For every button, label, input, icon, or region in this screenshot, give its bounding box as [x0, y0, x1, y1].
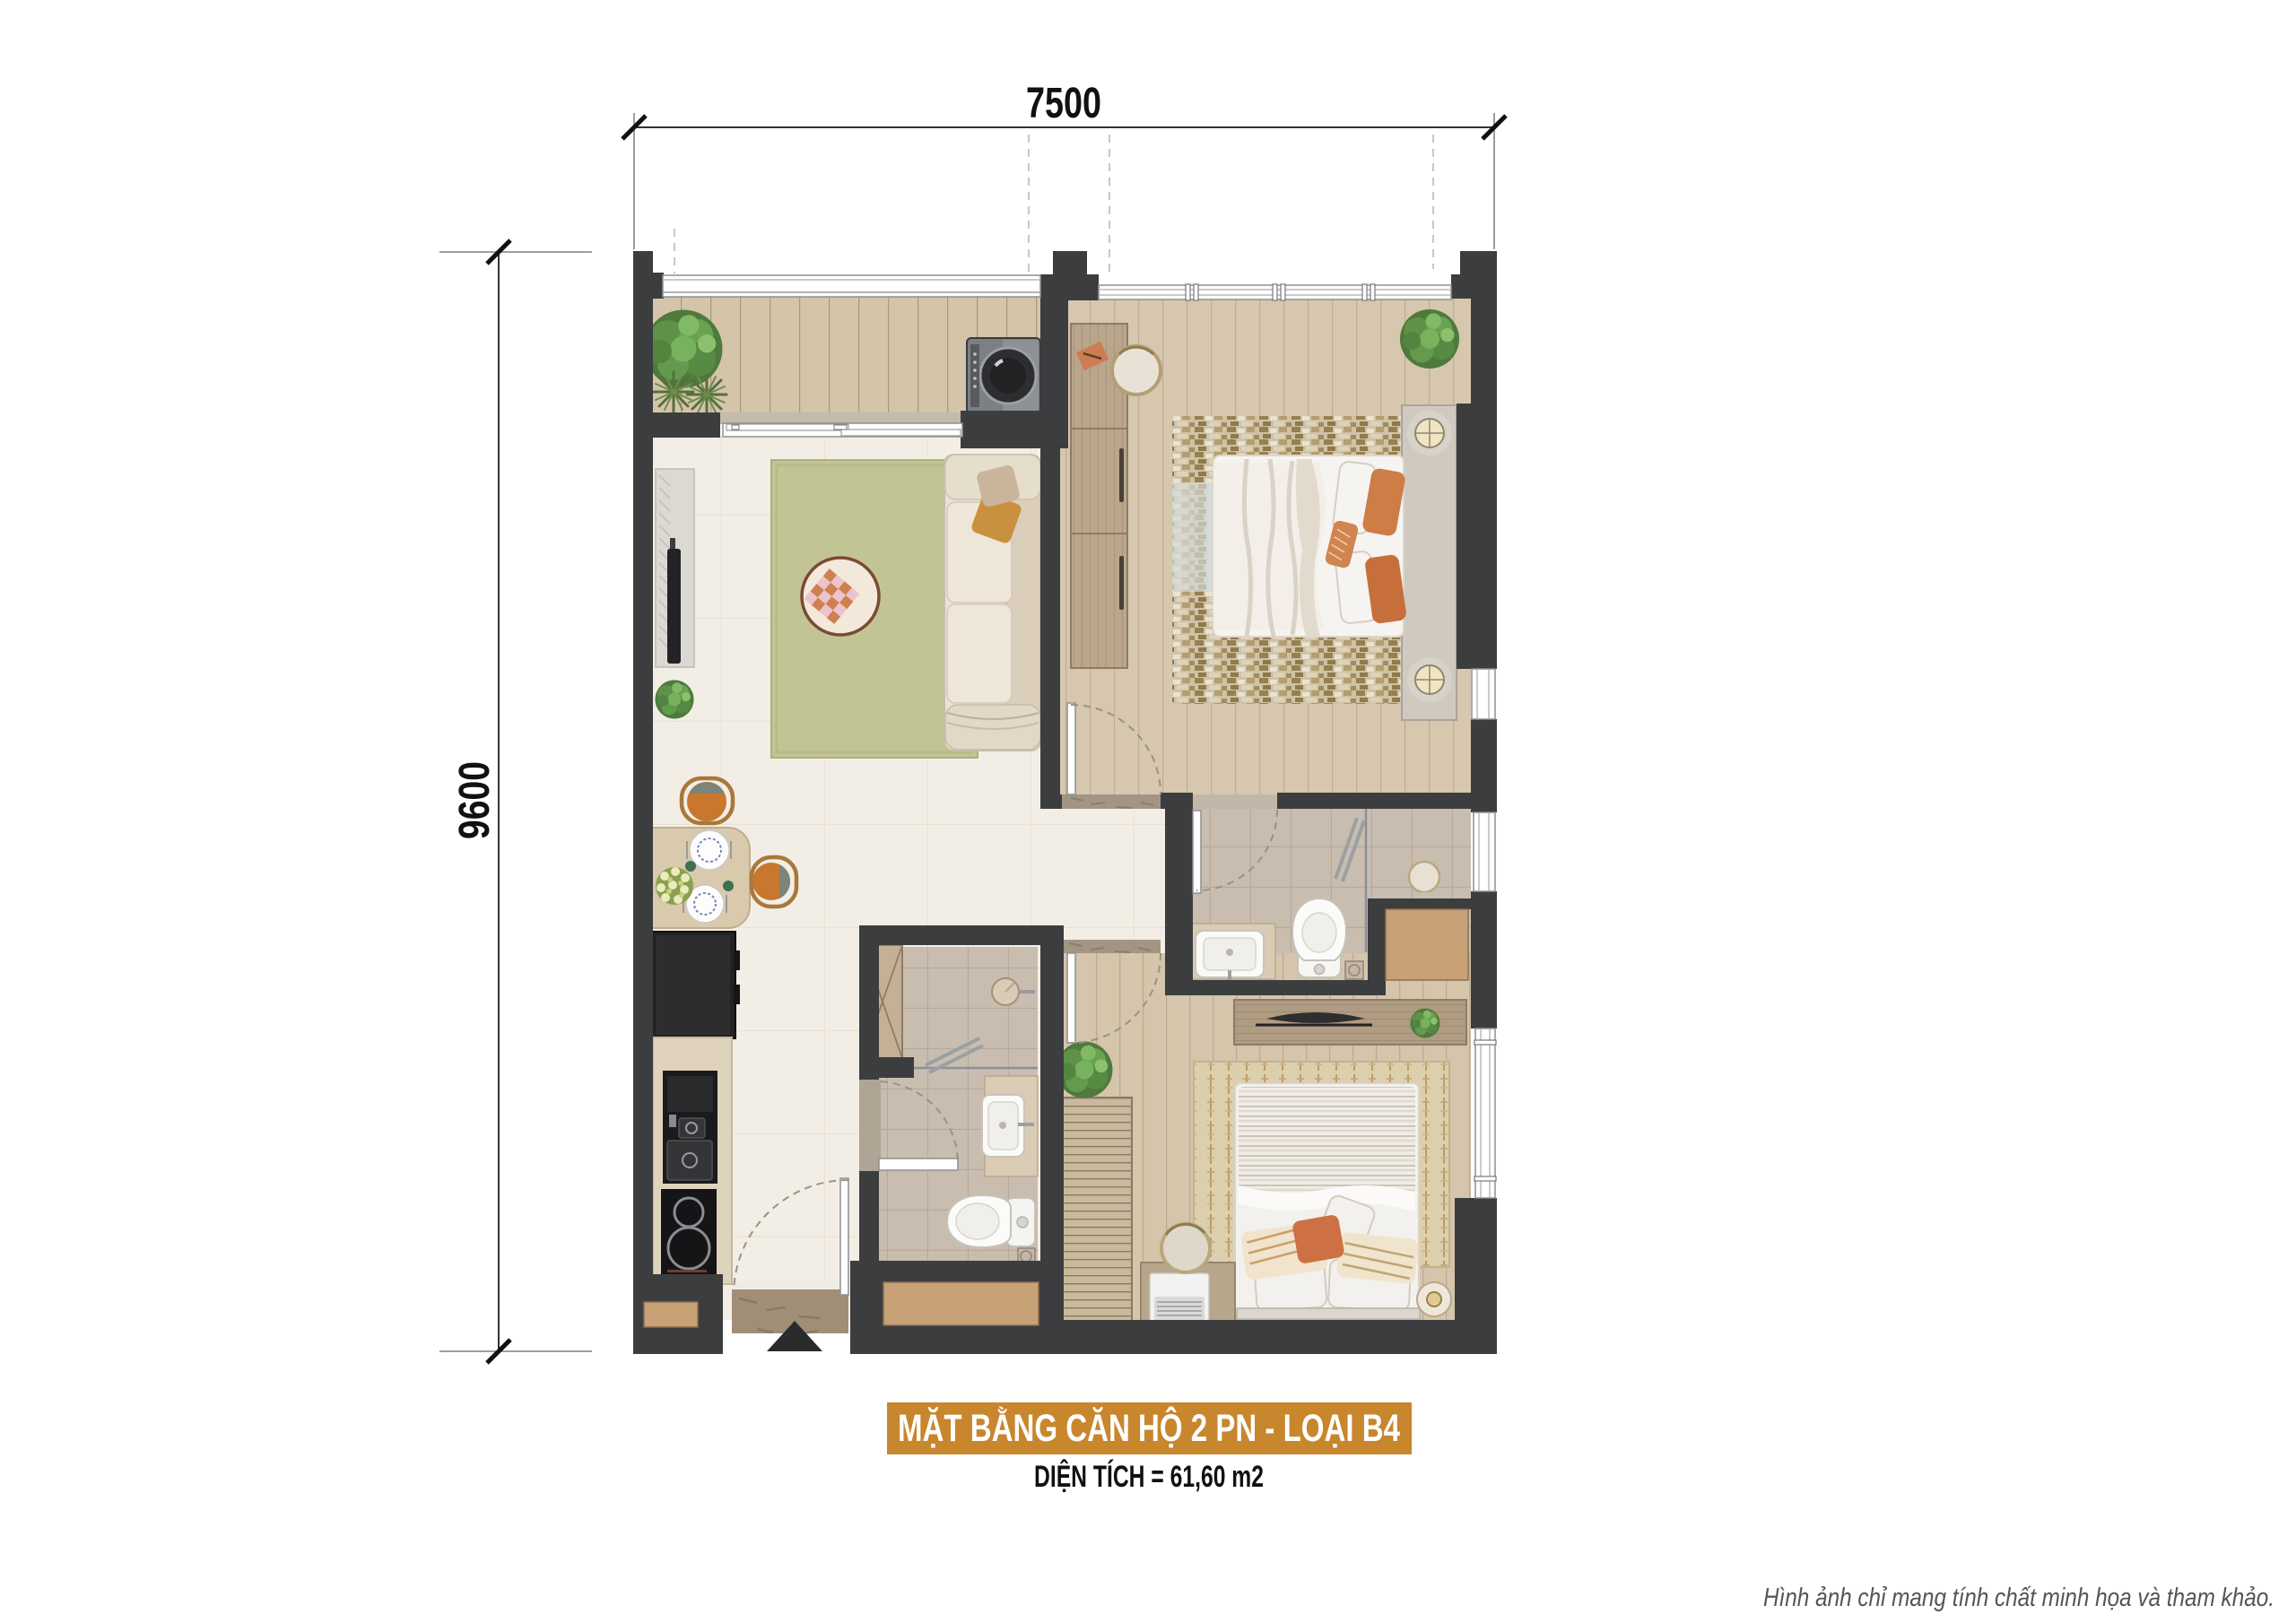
- svg-text:MẶT BẰNG CĂN HỘ 2 PN - LOẠI B4: MẶT BẰNG CĂN HỘ 2 PN - LOẠI B4: [898, 1406, 1400, 1450]
- svg-text:9600: 9600: [451, 761, 499, 839]
- svg-text:Hình ảnh chỉ mang tính chất mi: Hình ảnh chỉ mang tính chất minh họa và …: [1763, 1584, 2274, 1612]
- svg-text:DIỆN TÍCH = 61,60 m2: DIỆN TÍCH = 61,60 m2: [1034, 1460, 1264, 1494]
- svg-text:7500: 7500: [1026, 80, 1101, 127]
